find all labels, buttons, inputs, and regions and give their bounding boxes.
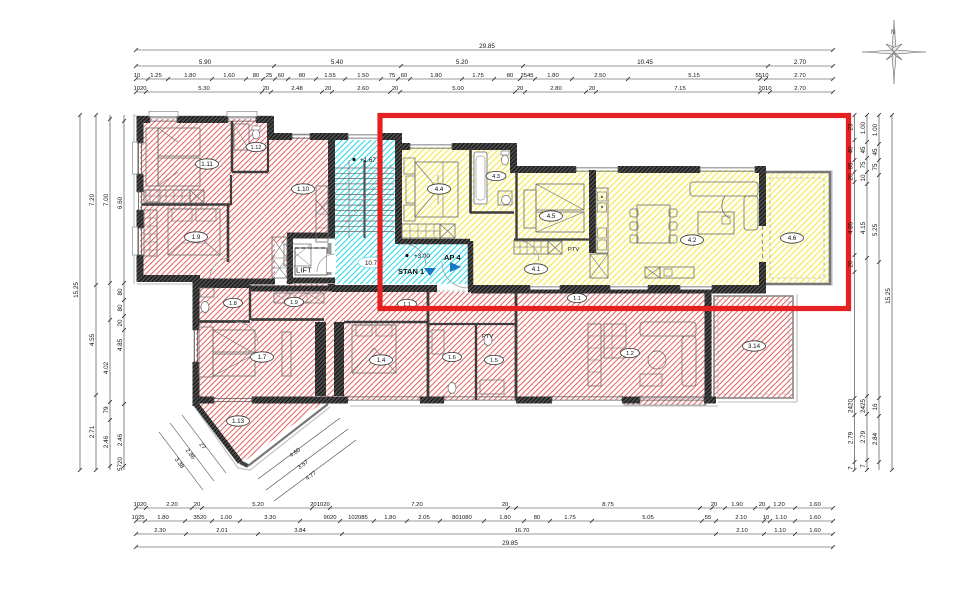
svg-text:7.00: 7.00: [103, 193, 110, 206]
svg-text:2.10: 2.10: [736, 528, 748, 534]
svg-text:1.60: 1.60: [809, 528, 821, 534]
svg-text:1.80: 1.80: [184, 73, 196, 79]
svg-text:2.01: 2.01: [216, 528, 227, 534]
svg-text:7: 7: [860, 464, 867, 468]
svg-text:20: 20: [711, 502, 718, 508]
svg-text:2.46: 2.46: [117, 433, 124, 446]
svg-text:2.46: 2.46: [103, 435, 110, 448]
svg-text:4.1: 4.1: [532, 266, 541, 273]
svg-text:1.9: 1.9: [192, 234, 201, 241]
svg-text:2.80: 2.80: [550, 86, 562, 92]
svg-text:+1.67: +1.67: [360, 157, 376, 164]
svg-text:2545: 2545: [520, 73, 534, 79]
svg-text:45: 45: [860, 146, 867, 154]
svg-text:4.85: 4.85: [848, 221, 855, 234]
svg-text:80: 80: [117, 304, 124, 312]
svg-text:2.71: 2.71: [89, 425, 96, 438]
svg-text:5.20: 5.20: [456, 59, 469, 66]
svg-text:5720: 5720: [117, 457, 124, 472]
svg-text:2.79: 2.79: [848, 431, 855, 444]
svg-text:1.55: 1.55: [324, 73, 336, 79]
svg-text:80: 80: [299, 73, 306, 79]
svg-text:60: 60: [278, 73, 285, 79]
svg-text:1020: 1020: [133, 502, 147, 508]
svg-text:4.4: 4.4: [435, 186, 444, 193]
svg-text:4.6: 4.6: [788, 235, 797, 242]
svg-text:3.84: 3.84: [294, 528, 306, 534]
svg-text:20: 20: [325, 86, 332, 92]
svg-text:60: 60: [401, 73, 408, 79]
svg-text:65: 65: [848, 162, 855, 170]
svg-text:20: 20: [589, 86, 596, 92]
svg-text:1.10: 1.10: [775, 515, 787, 521]
svg-text:2.70: 2.70: [794, 86, 806, 92]
svg-text:2.84: 2.84: [872, 432, 879, 445]
svg-text:40: 40: [848, 146, 855, 154]
svg-text:15.25: 15.25: [885, 288, 892, 304]
svg-text:PTV: PTV: [568, 247, 579, 253]
svg-text:2420: 2420: [848, 399, 855, 414]
svg-text:1.2: 1.2: [626, 351, 634, 357]
svg-text:1.80: 1.80: [384, 515, 396, 521]
svg-text:5.05: 5.05: [642, 515, 654, 521]
svg-text:2.20: 2.20: [166, 502, 178, 508]
svg-text:25: 25: [266, 73, 273, 79]
svg-text:102085: 102085: [348, 515, 368, 521]
svg-text:7.20: 7.20: [89, 193, 96, 206]
svg-text:1.8: 1.8: [229, 301, 237, 307]
svg-text:1025: 1025: [131, 515, 145, 521]
svg-text:7: 7: [848, 466, 855, 470]
svg-text:5.25: 5.25: [872, 223, 879, 236]
svg-text:N: N: [891, 29, 896, 36]
svg-text:80: 80: [253, 73, 260, 79]
svg-text:1.7: 1.7: [258, 354, 267, 361]
svg-text:3520: 3520: [193, 515, 207, 521]
svg-text:75: 75: [872, 163, 879, 171]
svg-text:4.02: 4.02: [103, 361, 110, 374]
svg-text:2.60: 2.60: [357, 86, 369, 92]
svg-text:1.60: 1.60: [809, 502, 821, 508]
svg-text:1.00: 1.00: [872, 123, 879, 136]
svg-text:29.85: 29.85: [479, 43, 495, 50]
svg-text:3.30: 3.30: [264, 515, 276, 521]
svg-text:2.50: 2.50: [594, 73, 606, 79]
svg-text:3.14: 3.14: [748, 343, 761, 350]
svg-text:5.30: 5.30: [198, 86, 210, 92]
svg-text:23: 23: [848, 123, 855, 131]
svg-text:1.10: 1.10: [297, 186, 310, 193]
svg-text:1.60: 1.60: [223, 73, 235, 79]
svg-text:1.80: 1.80: [430, 73, 442, 79]
svg-text:2.10: 2.10: [735, 515, 747, 521]
svg-text:20: 20: [848, 260, 855, 268]
svg-text:20: 20: [392, 86, 399, 92]
svg-text:1.12: 1.12: [251, 145, 262, 151]
svg-text:1.6: 1.6: [448, 355, 456, 361]
svg-text:1.10: 1.10: [774, 528, 786, 534]
svg-text:7.20: 7.20: [411, 502, 423, 508]
svg-text:15.25: 15.25: [73, 282, 80, 298]
svg-text:10: 10: [134, 73, 141, 79]
svg-text:4.5: 4.5: [547, 213, 556, 220]
svg-text:AP 4: AP 4: [444, 253, 461, 262]
svg-text:16.70: 16.70: [515, 528, 530, 534]
svg-text:1.5: 1.5: [490, 358, 498, 364]
svg-text:2425: 2425: [860, 399, 867, 414]
svg-text:9020: 9020: [323, 515, 337, 521]
svg-text:1.90: 1.90: [731, 502, 743, 508]
svg-text:1.80: 1.80: [547, 73, 559, 79]
svg-text:10: 10: [860, 174, 867, 182]
svg-text:2.70: 2.70: [794, 59, 807, 66]
svg-text:LIFT: LIFT: [296, 266, 312, 275]
svg-text:801080: 801080: [452, 515, 472, 521]
svg-text:1.60: 1.60: [809, 515, 821, 521]
svg-text:75: 75: [389, 73, 396, 79]
svg-text:8.75: 8.75: [602, 502, 614, 508]
svg-text:201020: 201020: [310, 502, 330, 508]
svg-text:20: 20: [194, 502, 201, 508]
svg-text:5.00: 5.00: [452, 86, 464, 92]
svg-text:20: 20: [263, 86, 270, 92]
svg-text:5.20: 5.20: [252, 502, 264, 508]
svg-text:45: 45: [872, 148, 879, 156]
svg-text:4.55: 4.55: [89, 333, 96, 346]
svg-text:7.15: 7.15: [674, 86, 686, 92]
svg-text:80: 80: [117, 288, 124, 296]
svg-text:5.40: 5.40: [331, 59, 344, 66]
svg-text:1.00: 1.00: [220, 515, 232, 521]
svg-text:STAN 1: STAN 1: [398, 267, 424, 276]
svg-text:5510: 5510: [755, 73, 769, 79]
svg-text:55: 55: [705, 515, 712, 521]
svg-text:1.1: 1.1: [573, 296, 581, 302]
svg-text:5.90: 5.90: [199, 59, 212, 66]
svg-text:1.80: 1.80: [499, 515, 511, 521]
svg-text:10.45: 10.45: [637, 59, 653, 66]
svg-text:20: 20: [848, 173, 855, 181]
svg-text:2.05: 2.05: [418, 515, 430, 521]
svg-text:75: 75: [860, 161, 867, 169]
svg-text:1.25: 1.25: [150, 73, 162, 79]
svg-text:10.7: 10.7: [365, 260, 378, 267]
svg-text:1.80: 1.80: [157, 515, 169, 521]
svg-text:1.20: 1.20: [773, 502, 785, 508]
svg-text:10: 10: [763, 515, 770, 521]
svg-text:16: 16: [872, 403, 879, 411]
svg-text:20: 20: [759, 502, 766, 508]
svg-text:1.9: 1.9: [290, 300, 298, 306]
svg-text:2010: 2010: [758, 86, 772, 92]
svg-text:1.4: 1.4: [377, 357, 386, 364]
svg-text:4.85: 4.85: [117, 338, 124, 351]
svg-text:20: 20: [502, 502, 509, 508]
svg-text:2.79: 2.79: [860, 430, 867, 443]
svg-text:20: 20: [517, 86, 524, 92]
svg-text:5.15: 5.15: [688, 73, 700, 79]
svg-text:80: 80: [507, 73, 514, 79]
svg-text:6.60: 6.60: [117, 196, 124, 209]
svg-text:1.13: 1.13: [232, 418, 245, 425]
svg-text:4.2: 4.2: [688, 237, 697, 244]
svg-text:79: 79: [103, 406, 110, 414]
svg-text:29.85: 29.85: [502, 540, 518, 547]
svg-text:1.75: 1.75: [564, 515, 576, 521]
svg-text:1020: 1020: [133, 86, 147, 92]
svg-text:2.48: 2.48: [291, 86, 303, 92]
svg-text:4.3: 4.3: [492, 174, 500, 180]
svg-text:1.75: 1.75: [472, 73, 484, 79]
svg-text:20: 20: [117, 319, 124, 327]
svg-text:1.11: 1.11: [201, 161, 213, 168]
svg-text:1.00: 1.00: [860, 121, 867, 134]
svg-text:2.30: 2.30: [154, 528, 166, 534]
svg-text:2.70: 2.70: [794, 73, 806, 79]
svg-text:4.15: 4.15: [860, 221, 867, 234]
svg-text:1.50: 1.50: [357, 73, 369, 79]
svg-text:PTV: PTV: [482, 334, 493, 340]
svg-text:80: 80: [534, 515, 541, 521]
